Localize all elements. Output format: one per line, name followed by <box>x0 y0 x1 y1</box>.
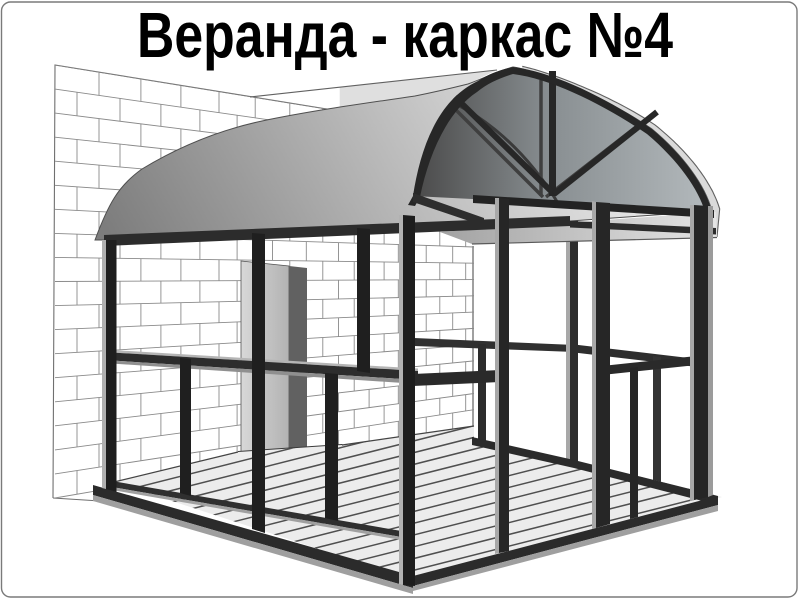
svg-text:Веранда - каркас №4: Веранда - каркас №4 <box>137 0 673 71</box>
